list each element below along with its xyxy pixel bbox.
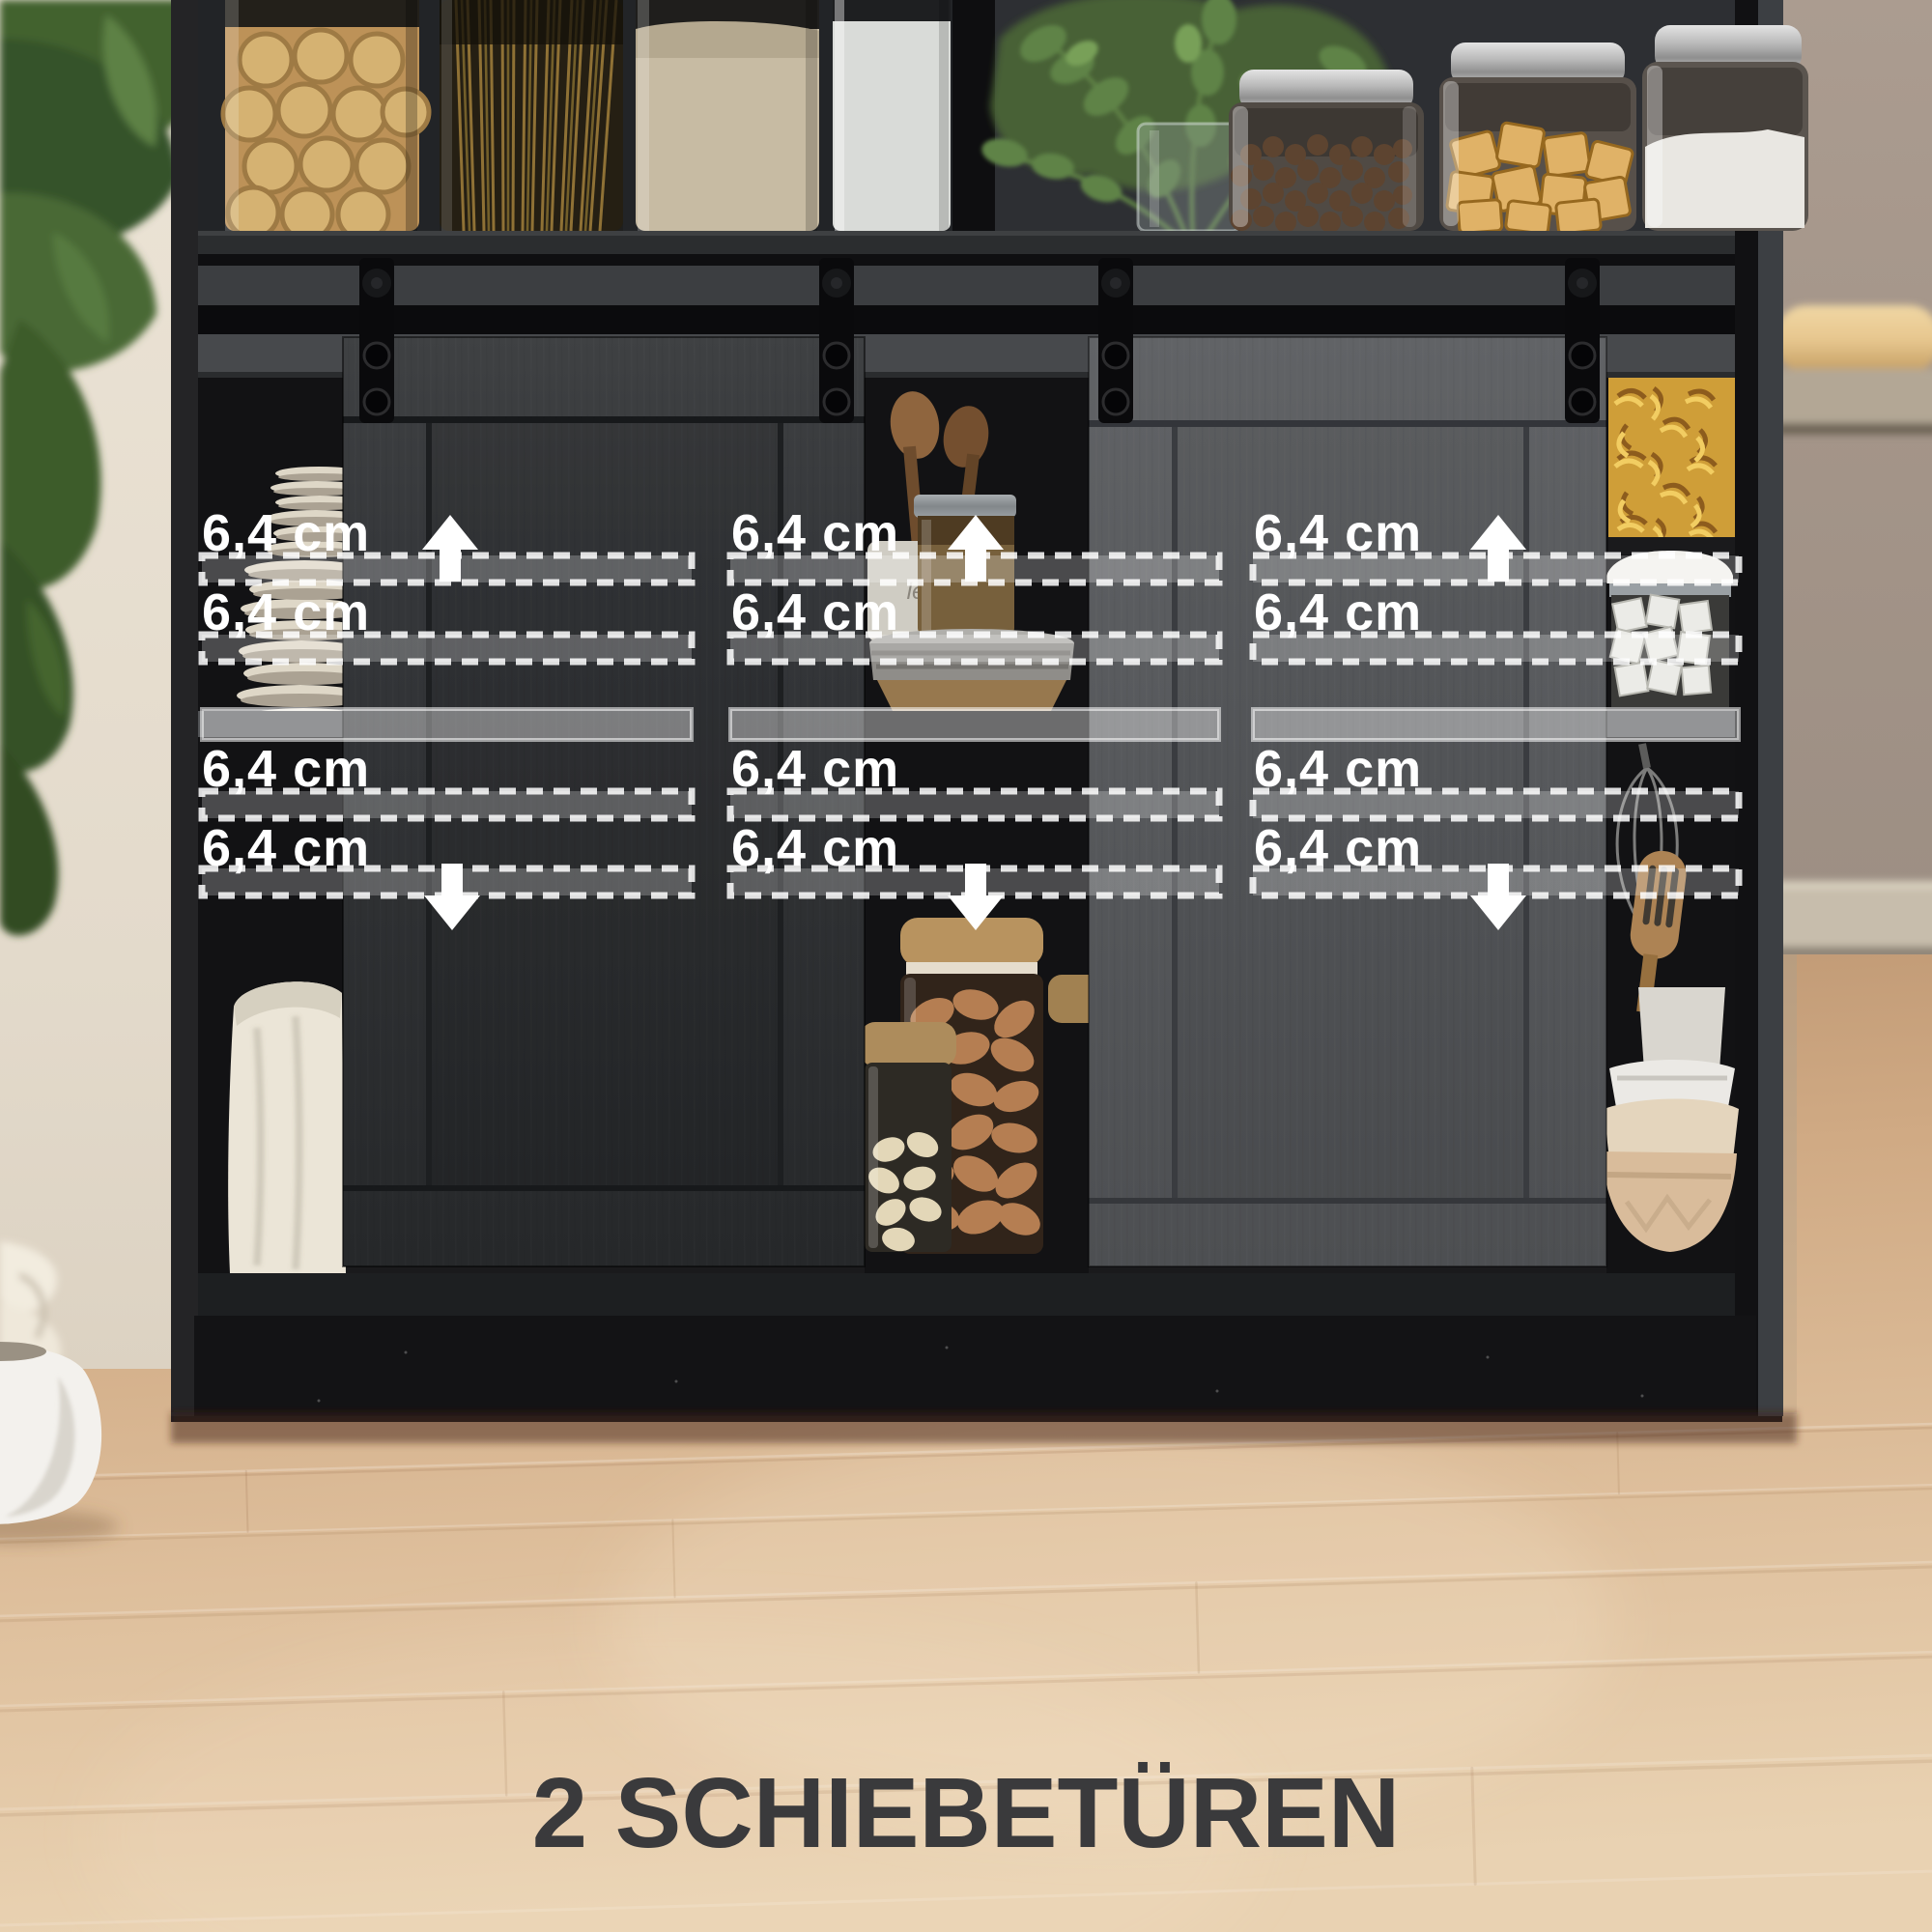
svg-text:2 SCHIEBETÜREN: 2 SCHIEBETÜREN: [532, 1757, 1401, 1868]
svg-text:6,4 cm: 6,4 cm: [731, 819, 899, 877]
svg-text:6,4 cm: 6,4 cm: [202, 504, 370, 562]
svg-text:6,4 cm: 6,4 cm: [731, 583, 899, 641]
svg-text:6,4 cm: 6,4 cm: [202, 740, 370, 798]
svg-text:6,4 cm: 6,4 cm: [202, 583, 370, 641]
svg-text:6,4 cm: 6,4 cm: [1254, 504, 1422, 562]
svg-text:6,4 cm: 6,4 cm: [731, 504, 899, 562]
svg-text:6,4 cm: 6,4 cm: [1254, 819, 1422, 877]
svg-text:6,4 cm: 6,4 cm: [202, 819, 370, 877]
svg-text:6,4 cm: 6,4 cm: [1254, 740, 1422, 798]
svg-text:6,4 cm: 6,4 cm: [1254, 583, 1422, 641]
svg-text:6,4 cm: 6,4 cm: [731, 740, 899, 798]
